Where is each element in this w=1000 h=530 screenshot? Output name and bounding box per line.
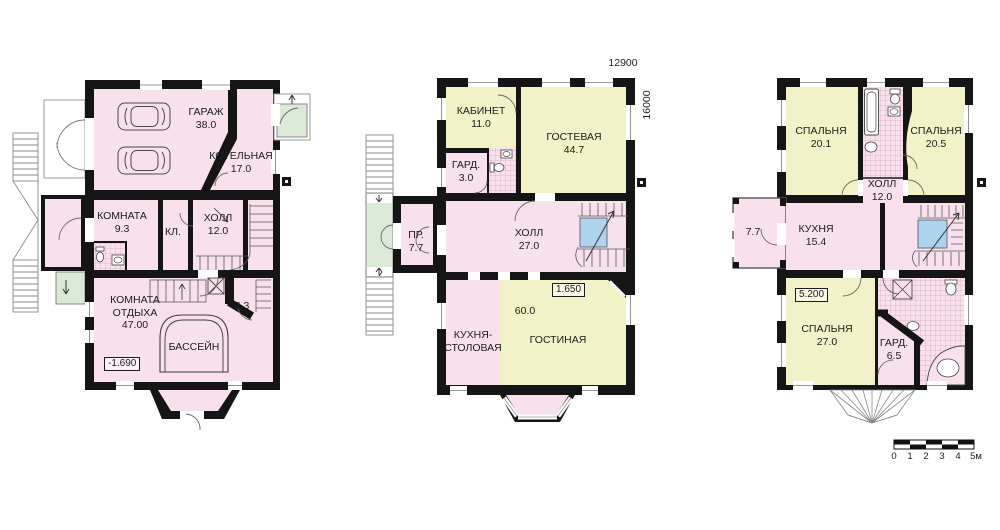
sink-icon xyxy=(888,107,900,116)
bathtub-icon xyxy=(865,89,879,135)
room-label-garage: ГАРАЖ38.0 xyxy=(189,106,224,131)
room-label-kabinet: КАБИНЕТ11.0 xyxy=(457,105,506,130)
toilet-icon xyxy=(96,247,104,262)
room-label-holl: ХОЛЛ12.0 xyxy=(868,178,897,203)
bay-roof-icon xyxy=(830,390,915,423)
dimension-height: 16000 xyxy=(641,83,653,127)
first-floor-plan: 12900 16000 КАБИНЕТ11.0 ГОСТЕВАЯ44.7 ГАР… xyxy=(350,55,670,445)
room-label-kitchen-dining: КУХНЯ-СТОЛОВАЯ xyxy=(440,329,506,354)
floor-plans-sheet: ГАРАЖ38.0 КОТЕЛЬНАЯ17.0 КОМНАТА9.3 КЛ. Х… xyxy=(0,0,1000,530)
section-marker xyxy=(637,178,646,187)
basement-floor-plan: ГАРАЖ38.0 КОТЕЛЬНАЯ17.0 КОМНАТА9.3 КЛ. Х… xyxy=(10,58,325,458)
room-garage xyxy=(94,89,228,190)
room-label-kitchen: КУХНЯ15.4 xyxy=(798,223,833,248)
room-area-gostinaya: 60.0 xyxy=(515,305,535,318)
room-label-komnata: КОМНАТА9.3 xyxy=(97,210,147,235)
side-porch xyxy=(56,272,85,304)
first-floor-drawing xyxy=(350,55,670,445)
second-floor-plan: СПАЛЬНЯ20.1 СПАЛЬНЯ20.5 ХОЛЛ12.0 7.7 КУХ… xyxy=(715,55,1000,485)
elevation-mark: 5.200 xyxy=(795,288,828,302)
scale-1: 1 xyxy=(907,451,912,462)
room-label-pr: ПР.7.7 xyxy=(408,229,423,254)
toilet-icon xyxy=(890,89,900,104)
room-label-bedroom3: СПАЛЬНЯ27.0 xyxy=(801,323,852,348)
scale-5m: 5м xyxy=(970,451,982,462)
room-label-otdyha: КОМНАТА ОТДЫХА47.00 xyxy=(99,294,171,332)
scale-3: 3 xyxy=(939,451,944,462)
room-label-kl: КЛ. xyxy=(165,226,181,239)
pier-wall xyxy=(446,272,558,280)
room-label-6-3: 6.3 xyxy=(235,300,250,313)
scale-4: 4 xyxy=(955,451,960,462)
side-vestibule xyxy=(41,195,85,271)
section-marker xyxy=(282,177,291,186)
basement-plan-drawing xyxy=(10,58,325,458)
sink-icon xyxy=(865,142,877,152)
room-label-bedroom1: СПАЛЬНЯ20.1 xyxy=(795,125,846,150)
room-label-holl: ХОЛЛ12.0 xyxy=(204,212,233,237)
shaft xyxy=(580,218,607,247)
sink-icon xyxy=(112,255,124,265)
shower-icon xyxy=(893,280,912,299)
sink-icon xyxy=(501,150,512,158)
stair-zone xyxy=(248,200,273,270)
external-stairs-icon xyxy=(13,133,38,312)
scale-2: 2 xyxy=(923,451,928,462)
dimension-width: 12900 xyxy=(588,57,658,69)
room-label-holl: ХОЛЛ27.0 xyxy=(515,227,544,252)
bathroom xyxy=(863,87,903,178)
room-label-bedroom2: СПАЛЬНЯ20.5 xyxy=(910,125,961,150)
room-label-gostinaya: ГОСТИНАЯ xyxy=(530,334,587,347)
room-label-boiler: КОТЕЛЬНАЯ17.0 xyxy=(209,150,273,175)
bathroom xyxy=(94,242,126,270)
section-marker xyxy=(977,178,986,187)
entry-porch xyxy=(366,193,393,277)
scale-0: 0 xyxy=(891,451,896,462)
room-label-gard: ГАРД.3.0 xyxy=(452,159,480,184)
toilet-icon xyxy=(490,163,504,172)
toilet-icon xyxy=(945,280,957,295)
bathroom xyxy=(489,148,516,193)
second-floor-drawing xyxy=(715,55,1000,485)
room-label-pool: БАССЕЙН xyxy=(169,341,220,354)
elevation-mark: 1.650 xyxy=(552,283,585,297)
room-label-balcony: 7.7 xyxy=(746,226,761,239)
elevation-mark: -1.690 xyxy=(104,357,140,371)
scale-bar: 0 1 2 3 4 5м xyxy=(890,438,994,468)
room-label-gard: ГАРД.6.5 xyxy=(880,337,908,362)
garage-entry-porch xyxy=(44,100,85,178)
room-label-gostevaya: ГОСТЕВАЯ44.7 xyxy=(546,131,601,156)
scale-bar-graphic xyxy=(890,439,994,451)
